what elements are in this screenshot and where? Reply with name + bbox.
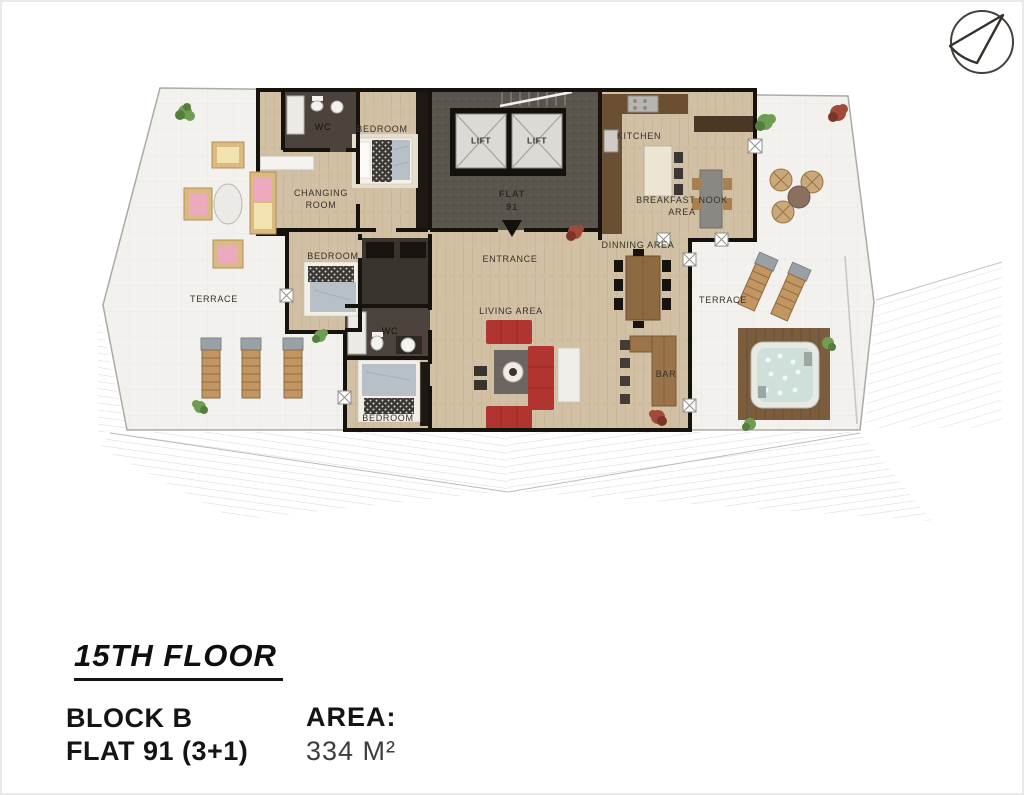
area-value: 334 M²	[306, 736, 396, 767]
area-label: AREA:	[306, 702, 397, 733]
block-label: BLOCK B	[66, 703, 193, 734]
floor-title: 15TH FLOOR	[74, 638, 283, 681]
flat-label: FLAT 91 (3+1)	[66, 736, 248, 767]
floor-plan-page: WC BEDROOM CHANGING ROOM LIFT LIFT FLAT …	[0, 0, 1024, 795]
plan-titles: 15TH FLOOR BLOCK B FLAT 91 (3+1) AREA: 3…	[0, 0, 1024, 795]
